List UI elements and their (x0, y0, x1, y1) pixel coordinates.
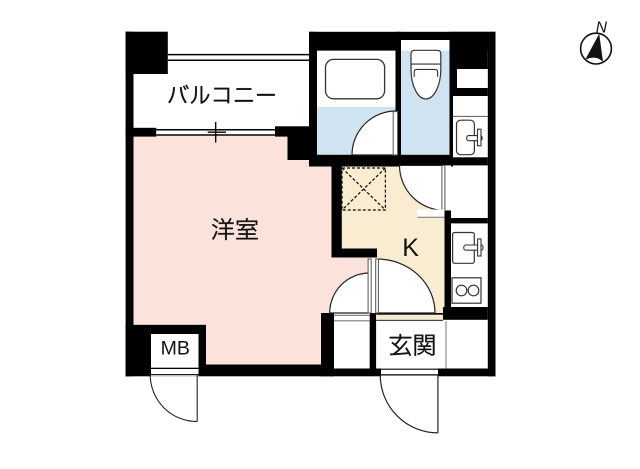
svg-text:K: K (402, 234, 419, 262)
svg-text:N: N (596, 19, 608, 36)
svg-text:MB: MB (161, 338, 190, 360)
